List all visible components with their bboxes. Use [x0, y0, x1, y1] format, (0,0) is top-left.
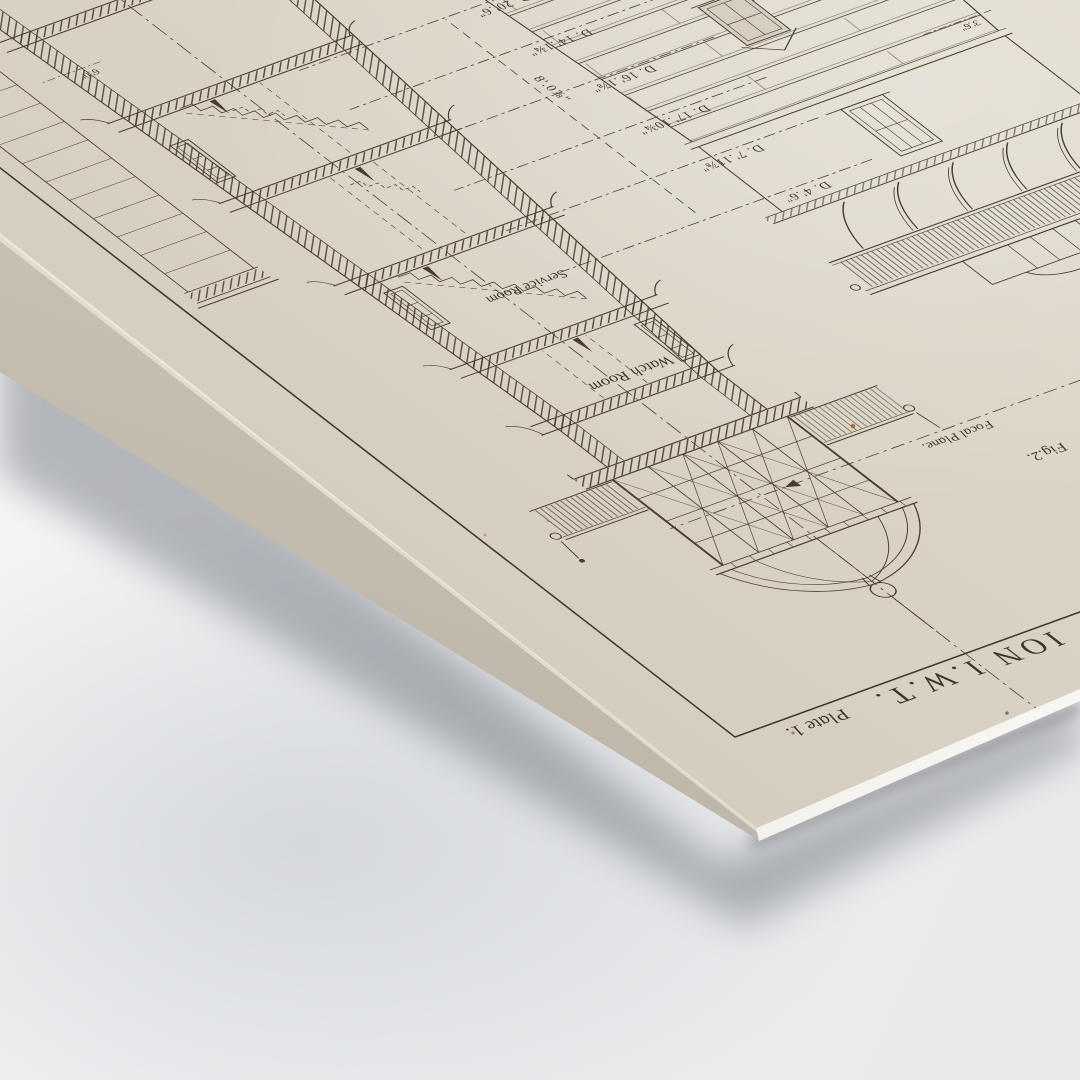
lantern-glazing — [612, 416, 897, 565]
photo-scene: ION I.W.T. Plate 1. Fig.2. Focal Plane. … — [0, 0, 1080, 1080]
foxing-speck — [1005, 711, 1009, 715]
gallery-railing — [520, 482, 675, 564]
figure-2-label: Fig.2. — [1022, 440, 1072, 464]
focal-plane-arrow — [781, 480, 801, 491]
elevation-window — [826, 92, 950, 162]
service-room-label: Service Room — [481, 267, 572, 305]
foxing-speck — [484, 534, 487, 537]
height-dimension-label: 8'.0⅞" — [530, 74, 575, 103]
level-annotation: D. 4'.6" — [560, 159, 886, 283]
foxing-speck — [547, 520, 550, 523]
plate-title: ION I.W.T. — [862, 627, 1071, 714]
foxing-speck — [851, 424, 856, 429]
lantern-cornice — [710, 497, 917, 575]
plate-number-label: Plate 1. — [780, 706, 857, 741]
gallery-railing — [791, 383, 940, 461]
foxing-speck — [791, 731, 794, 734]
lantern-drawing — [437, 320, 1080, 695]
gallery-railing-drawing — [822, 139, 1080, 298]
